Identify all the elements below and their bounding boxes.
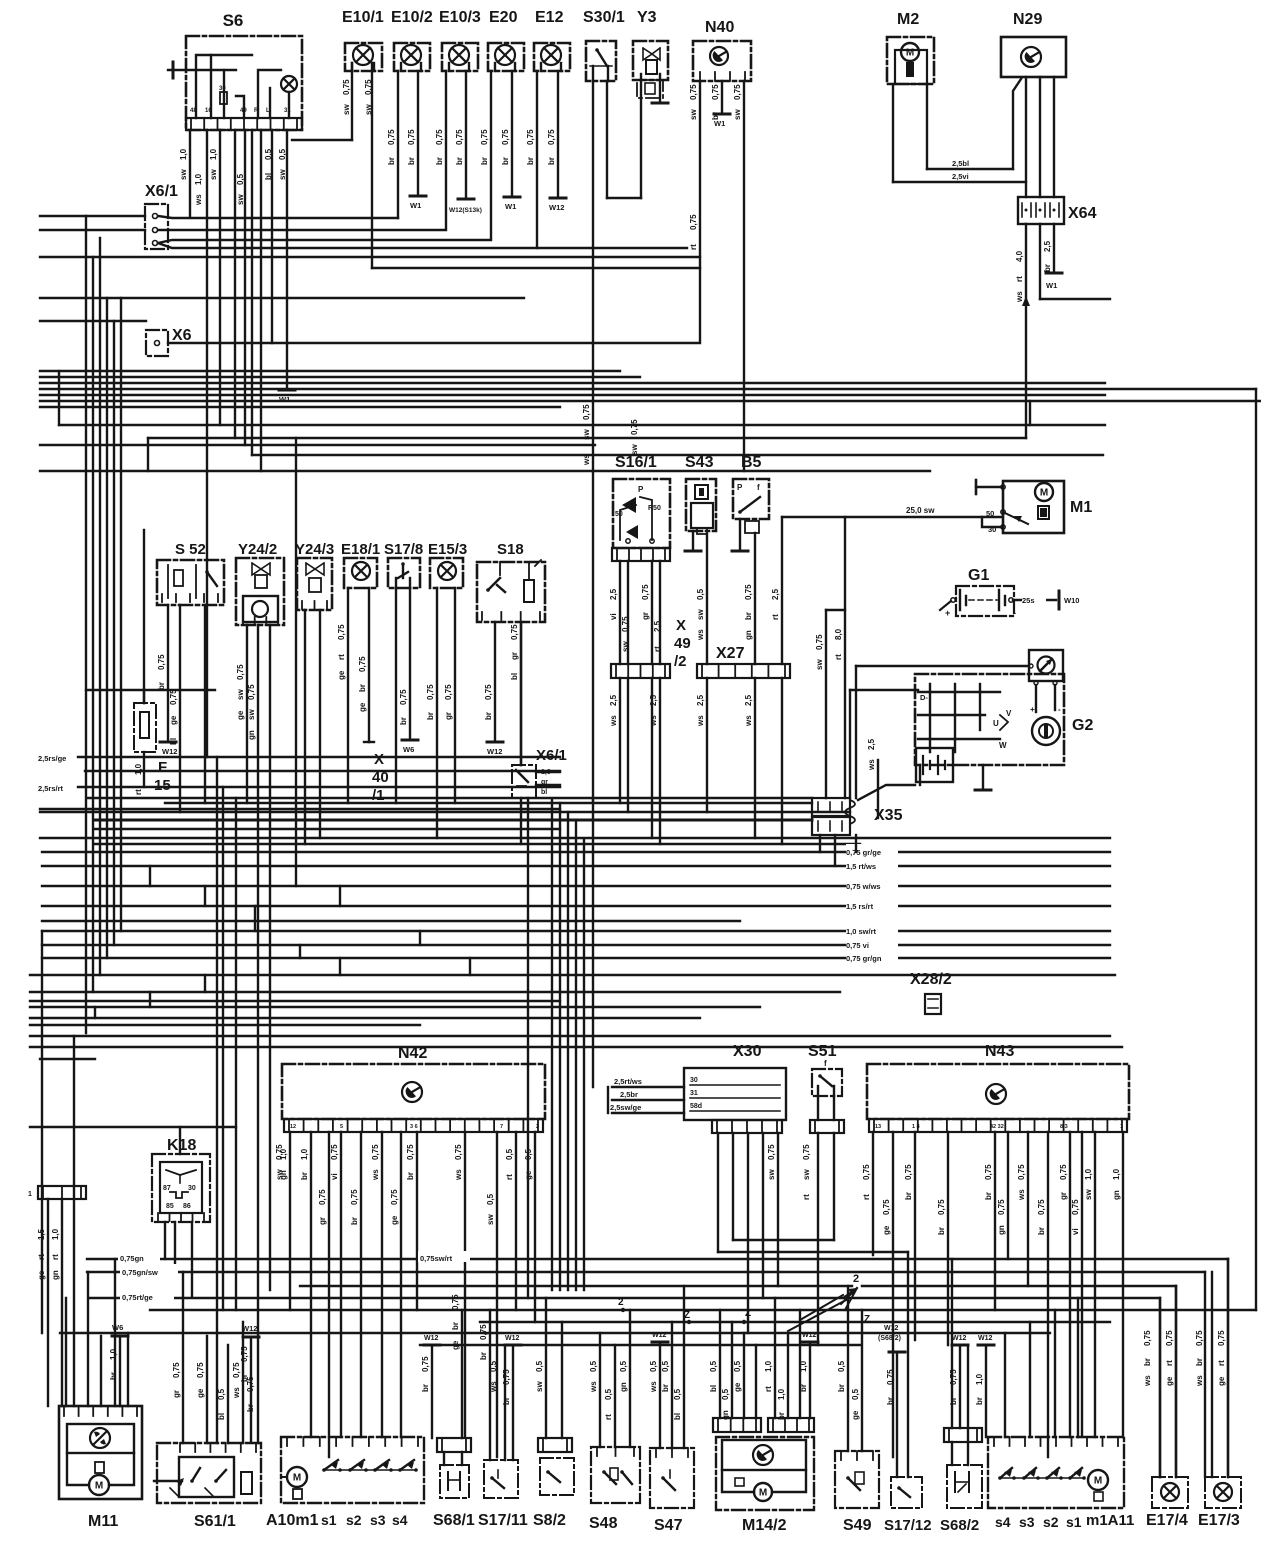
svg-text:2: 2: [618, 1297, 624, 1308]
svg-text:2: 2: [853, 1273, 859, 1285]
svg-text:F: F: [158, 759, 167, 776]
svg-text:N42: N42: [398, 1045, 427, 1062]
svg-text:E17/4: E17/4: [1146, 1512, 1188, 1529]
svg-text:X35: X35: [874, 807, 903, 824]
svg-text:ge: ge: [1217, 1376, 1226, 1386]
svg-text:S17/12: S17/12: [884, 1517, 932, 1534]
svg-text:0,75: 0,75: [744, 584, 753, 600]
svg-text:2: 2: [536, 1124, 539, 1130]
svg-text:S61/1: S61/1: [194, 1513, 236, 1530]
svg-text:0,75: 0,75: [815, 634, 824, 650]
svg-text:1,0: 1,0: [1112, 1168, 1121, 1180]
svg-text:bl: bl: [510, 673, 519, 680]
svg-text:vi: vi: [330, 1173, 339, 1180]
svg-text:0,75: 0,75: [641, 584, 650, 600]
svg-text:1,5 rs/rt: 1,5 rs/rt: [846, 902, 874, 911]
svg-text:s2: s2: [346, 1512, 362, 1528]
svg-text:W1: W1: [279, 395, 290, 404]
svg-text:ws: ws: [454, 1169, 463, 1181]
svg-text:Z: Z: [864, 1314, 870, 1325]
svg-text:br: br: [937, 1227, 946, 1235]
svg-text:0,75: 0,75: [526, 129, 535, 145]
svg-text:0,5: 0,5: [486, 1193, 495, 1205]
svg-text:25,0 sw: 25,0 sw: [906, 506, 935, 515]
svg-text:0,5: 0,5: [505, 1148, 514, 1160]
svg-text:A10m1: A10m1: [266, 1512, 319, 1529]
svg-text:30: 30: [188, 1185, 196, 1192]
svg-text:E20: E20: [489, 9, 518, 26]
svg-text:0,75: 0,75: [1143, 1330, 1152, 1346]
svg-text:2,5: 2,5: [653, 620, 662, 632]
svg-text:Z: Z: [745, 1308, 751, 1319]
svg-text:br: br: [1043, 264, 1052, 272]
svg-text:ws: ws: [194, 194, 203, 206]
svg-text:40: 40: [372, 769, 389, 786]
svg-text:br: br: [777, 1412, 786, 1420]
svg-text:0,75: 0,75: [426, 684, 435, 700]
svg-text:1,0: 1,0: [51, 1228, 60, 1240]
svg-text:br: br: [300, 1172, 309, 1180]
svg-text:s1: s1: [321, 1512, 337, 1528]
svg-text:M: M: [1040, 488, 1048, 499]
svg-text:0,75: 0,75: [937, 1199, 946, 1215]
svg-text:rt: rt: [834, 654, 843, 660]
svg-text:br: br: [426, 712, 435, 720]
svg-text:br: br: [406, 1172, 415, 1180]
svg-text:0,75sw/rt: 0,75sw/rt: [420, 1254, 453, 1263]
svg-text:br: br: [109, 1372, 118, 1380]
svg-text:gr: gr: [172, 1390, 181, 1398]
svg-text:ge: ge: [337, 670, 346, 680]
svg-text:sw: sw: [209, 169, 218, 180]
svg-text:gn: gn: [721, 1410, 730, 1420]
svg-text:0,5: 0,5: [721, 1388, 730, 1400]
svg-text:0,5: 0,5: [837, 1360, 846, 1372]
svg-text:br: br: [526, 157, 535, 165]
svg-text:D-: D-: [920, 693, 928, 702]
svg-text:rt: rt: [862, 1194, 871, 1200]
svg-text:W12: W12: [487, 747, 502, 756]
svg-text:2,5vi: 2,5vi: [952, 172, 969, 181]
svg-text:X64: X64: [1068, 205, 1097, 222]
svg-text:gr: gr: [318, 1217, 327, 1225]
svg-text:W: W: [999, 741, 1007, 750]
svg-text:G2: G2: [1072, 717, 1093, 734]
svg-text:S16/1: S16/1: [615, 454, 657, 471]
svg-text:0,75: 0,75: [949, 1369, 958, 1385]
svg-text:N29: N29: [1013, 11, 1042, 28]
svg-text:rt: rt: [505, 1174, 514, 1180]
svg-text:gn: gn: [247, 730, 256, 740]
svg-text:sw: sw: [815, 659, 824, 670]
svg-text:0,75: 0,75: [330, 1144, 339, 1160]
svg-text:br: br: [984, 1192, 993, 1200]
svg-text:vi: vi: [609, 613, 618, 620]
svg-text:gr: gr: [541, 779, 548, 786]
svg-text:ge: ge: [733, 1382, 742, 1392]
svg-text:rt: rt: [764, 1386, 773, 1392]
svg-text:1: 1: [28, 1191, 32, 1198]
svg-text:0,75: 0,75: [510, 624, 519, 640]
svg-text:0,5: 0,5: [649, 1360, 658, 1372]
svg-text:sw: sw: [247, 709, 256, 720]
svg-text:X27: X27: [716, 645, 745, 662]
svg-text:1,0 sw/rt: 1,0 sw/rt: [846, 927, 877, 936]
svg-text:sw: sw: [236, 689, 245, 700]
svg-text:rt: rt: [653, 646, 662, 652]
svg-text:G1: G1: [968, 567, 989, 584]
svg-text:N43: N43: [985, 1043, 1014, 1060]
svg-text:V: V: [1006, 709, 1012, 718]
svg-text:1,0: 1,0: [134, 763, 143, 775]
svg-text:2,5: 2,5: [649, 694, 658, 706]
svg-text:0,75: 0,75: [1195, 1330, 1204, 1346]
svg-text:1,5: 1,5: [37, 1228, 46, 1240]
svg-text:0,75: 0,75: [904, 1164, 913, 1180]
svg-text:0,75: 0,75: [337, 624, 346, 640]
svg-text:E10/3: E10/3: [439, 9, 481, 26]
svg-text:0,75: 0,75: [1165, 1330, 1174, 1346]
svg-text:ws: ws: [589, 1381, 598, 1393]
svg-text:0,75: 0,75: [246, 1376, 255, 1392]
svg-text:0,75: 0,75: [480, 129, 489, 145]
svg-text:sw: sw: [535, 1381, 544, 1392]
svg-text:0,75: 0,75: [711, 84, 720, 100]
svg-text:0,5: 0,5: [217, 1388, 226, 1400]
svg-text:W12: W12: [884, 1325, 899, 1332]
svg-text:0,75 gr/ge: 0,75 gr/ge: [846, 848, 881, 857]
svg-text:W12: W12: [505, 1335, 520, 1342]
svg-text:0,75: 0,75: [169, 689, 178, 705]
svg-text:br: br: [479, 1352, 488, 1360]
svg-text:P: P: [638, 485, 644, 494]
svg-text:f: f: [757, 483, 760, 492]
svg-text:E15/3: E15/3: [428, 541, 467, 558]
svg-text:Y3: Y3: [637, 9, 657, 26]
svg-text:ws: ws: [1017, 1189, 1026, 1201]
svg-text:bl: bl: [264, 173, 273, 180]
svg-text:0,75: 0,75: [451, 1294, 460, 1310]
svg-text:ws: ws: [232, 1387, 241, 1399]
svg-text:sw: sw: [179, 169, 188, 180]
svg-text:0,75: 0,75: [454, 1144, 463, 1160]
svg-text:0,75: 0,75: [547, 129, 556, 145]
svg-text:sw: sw: [767, 1169, 776, 1180]
svg-text:2,5: 2,5: [609, 694, 618, 706]
svg-text:2,5rs/ge: 2,5rs/ge: [38, 754, 66, 763]
svg-text:0,75: 0,75: [501, 129, 510, 145]
svg-text:0,75: 0,75: [421, 1356, 430, 1372]
svg-text:ge: ge: [1165, 1376, 1174, 1386]
svg-text:2,5rs/rt: 2,5rs/rt: [38, 784, 64, 793]
svg-text:ws: ws: [649, 1381, 658, 1393]
svg-text:0,5: 0,5: [709, 1360, 718, 1372]
svg-text:sw: sw: [802, 1169, 811, 1180]
svg-text:br: br: [1037, 1227, 1046, 1235]
svg-text:Y24/2: Y24/2: [238, 541, 277, 558]
svg-text:2,5: 2,5: [867, 738, 876, 750]
svg-text:ge: ge: [451, 1340, 460, 1350]
svg-text:50: 50: [615, 511, 623, 518]
svg-text:ge: ge: [390, 1215, 399, 1225]
svg-text:S18: S18: [497, 541, 524, 558]
svg-text:S48: S48: [589, 1515, 618, 1532]
svg-text:L: L: [266, 108, 270, 114]
svg-text:br: br: [1143, 1358, 1152, 1366]
svg-text:gr: gr: [444, 712, 453, 720]
svg-text:br: br: [480, 157, 489, 165]
svg-text:ge: ge: [37, 1270, 46, 1280]
svg-text:E17/3: E17/3: [1198, 1512, 1240, 1529]
svg-text:X: X: [676, 617, 686, 634]
svg-text:br: br: [975, 1397, 984, 1405]
svg-text:br: br: [451, 1322, 460, 1330]
svg-text:30: 30: [690, 1077, 698, 1084]
svg-text:S68/2: S68/2: [940, 1517, 979, 1534]
svg-text:8 3: 8 3: [1060, 1124, 1068, 1130]
svg-text:W6: W6: [403, 745, 414, 754]
svg-text:ws: ws: [371, 1169, 380, 1181]
svg-text:0,75: 0,75: [318, 1189, 327, 1205]
svg-text:0,75: 0,75: [444, 684, 453, 700]
svg-text:sw: sw: [364, 104, 373, 115]
svg-text:W12: W12: [802, 1332, 817, 1339]
svg-text:58d: 58d: [690, 1103, 702, 1110]
svg-text:48: 48: [190, 108, 197, 114]
svg-text:vi: vi: [1071, 1228, 1080, 1235]
svg-text:25s: 25s: [1022, 596, 1035, 605]
svg-text:S68/1: S68/1: [433, 1512, 475, 1529]
svg-text:ge: ge: [358, 702, 367, 712]
svg-text:W12(S13k): W12(S13k): [449, 207, 482, 214]
svg-text:0,75: 0,75: [886, 1369, 895, 1385]
svg-text:rt: rt: [134, 789, 143, 795]
svg-text:rt: rt: [1015, 276, 1024, 282]
svg-text:12: 12: [290, 1124, 296, 1130]
svg-text:0,75: 0,75: [240, 1346, 249, 1362]
svg-text:W12: W12: [549, 203, 564, 212]
svg-text:W1: W1: [410, 201, 421, 210]
svg-text:br: br: [358, 684, 367, 692]
svg-text:0,75: 0,75: [390, 1189, 399, 1205]
svg-text:sw: sw: [733, 109, 742, 120]
svg-text:rt: rt: [1165, 1360, 1174, 1366]
svg-text:0,75: 0,75: [407, 129, 416, 145]
svg-text:W12: W12: [424, 1335, 439, 1342]
svg-text:-: -: [1013, 608, 1016, 618]
svg-text:0,75: 0,75: [172, 1362, 181, 1378]
svg-text:sw: sw: [342, 104, 351, 115]
svg-text:M: M: [1094, 1476, 1102, 1487]
svg-text:br: br: [350, 1217, 359, 1225]
svg-text:sw: sw: [689, 109, 698, 120]
svg-text:s2: s2: [1043, 1514, 1059, 1530]
svg-text:W12: W12: [242, 1324, 257, 1333]
svg-text:br: br: [501, 157, 510, 165]
svg-text:sw: sw: [486, 1214, 495, 1225]
svg-text:0,75: 0,75: [358, 656, 367, 672]
svg-text:1,0: 1,0: [109, 1348, 118, 1360]
svg-text:0,5: 0,5: [661, 1360, 670, 1372]
svg-text:2,5: 2,5: [771, 588, 780, 600]
svg-text:0,75: 0,75: [275, 1144, 284, 1160]
svg-text:49: 49: [240, 108, 247, 114]
svg-text:ge: ge: [169, 715, 178, 725]
svg-text:0,75: 0,75: [350, 1189, 359, 1205]
svg-text:5: 5: [340, 1124, 343, 1130]
svg-text:0,75gn/sw: 0,75gn/sw: [122, 1268, 158, 1277]
svg-text:br: br: [949, 1397, 958, 1405]
svg-text:S47: S47: [654, 1517, 683, 1534]
svg-text:ws: ws: [1015, 291, 1024, 303]
svg-text:M: M: [293, 1473, 301, 1484]
svg-text:1,0: 1,0: [764, 1360, 773, 1372]
svg-text:16: 16: [205, 108, 212, 114]
svg-text:0,5: 0,5: [535, 1360, 544, 1372]
svg-text:bl: bl: [709, 1385, 718, 1392]
svg-text:Y24/3: Y24/3: [295, 541, 334, 558]
svg-text:50: 50: [986, 509, 994, 518]
svg-text:0,5: 0,5: [489, 1360, 498, 1372]
svg-text:S49: S49: [843, 1517, 872, 1534]
svg-text:br: br: [407, 157, 416, 165]
svg-text:0,75: 0,75: [1217, 1330, 1226, 1346]
svg-text:br: br: [837, 1384, 846, 1392]
svg-text:0,75: 0,75: [1071, 1199, 1080, 1215]
svg-text:gr: gr: [1059, 1192, 1068, 1200]
svg-text:0,75: 0,75: [236, 664, 245, 680]
svg-text:0,5: 0,5: [278, 148, 287, 160]
svg-text:13: 13: [875, 1124, 881, 1130]
svg-text:rt: rt: [337, 654, 346, 660]
svg-text:1: 1: [1120, 1124, 1123, 1130]
svg-text:rt: rt: [51, 1254, 60, 1260]
svg-text:br: br: [246, 1404, 255, 1412]
svg-text:0,5: 0,5: [733, 1360, 742, 1372]
svg-text:0,75: 0,75: [364, 79, 373, 95]
svg-text:f: f: [824, 1059, 827, 1068]
svg-text:2,5: 2,5: [744, 694, 753, 706]
svg-text:br: br: [547, 157, 556, 165]
svg-text:15: 15: [154, 777, 171, 794]
svg-text:0,5: 0,5: [619, 1360, 628, 1372]
svg-text:0,75 w/ws: 0,75 w/ws: [846, 882, 881, 891]
svg-text:87: 87: [163, 1185, 171, 1192]
svg-text:ws: ws: [696, 629, 705, 641]
svg-text:0,75: 0,75: [406, 1144, 415, 1160]
svg-text:0,75: 0,75: [196, 1362, 205, 1378]
svg-text:br: br: [435, 157, 444, 165]
svg-text:S8/2: S8/2: [533, 1512, 566, 1529]
svg-text:1,0: 1,0: [209, 148, 218, 160]
svg-text:X6: X6: [172, 327, 192, 344]
svg-text:2,5br: 2,5br: [620, 1090, 638, 1099]
svg-text:X6/1: X6/1: [145, 183, 178, 200]
svg-text:sw: sw: [621, 641, 630, 652]
svg-text:1,0: 1,0: [541, 769, 551, 776]
svg-text:0,75: 0,75: [371, 1144, 380, 1160]
svg-text:2,5: 2,5: [609, 588, 618, 600]
svg-text:br: br: [661, 1384, 670, 1392]
svg-text:0,75: 0,75: [621, 616, 630, 632]
svg-text:42 32: 42 32: [990, 1124, 1004, 1130]
svg-text:rt: rt: [802, 1194, 811, 1200]
svg-text:sw: sw: [278, 169, 287, 180]
svg-text:S17/11: S17/11: [478, 1512, 528, 1529]
svg-text:ws: ws: [489, 1381, 498, 1393]
svg-text:/1: /1: [372, 787, 385, 804]
svg-text:0,75: 0,75: [479, 1324, 488, 1340]
svg-text:0,75: 0,75: [232, 1362, 241, 1378]
svg-text:br: br: [399, 717, 408, 725]
svg-text:1,0: 1,0: [194, 173, 203, 185]
svg-text:+: +: [1030, 705, 1035, 714]
svg-text:ge: ge: [236, 710, 245, 720]
svg-text:ws: ws: [867, 759, 876, 771]
svg-text:br: br: [421, 1384, 430, 1392]
svg-text:sw: sw: [275, 1169, 284, 1180]
svg-text:0,75: 0,75: [984, 1164, 993, 1180]
svg-text:M14/2: M14/2: [742, 1517, 787, 1534]
svg-text:0,75 gr/gn: 0,75 gr/gn: [846, 954, 882, 963]
svg-text:s4: s4: [392, 1512, 408, 1528]
svg-text:(S68/2): (S68/2): [878, 1335, 901, 1342]
svg-text:W12: W12: [952, 1335, 967, 1342]
svg-text:W6: W6: [112, 1323, 123, 1332]
svg-text:S6: S6: [223, 11, 244, 30]
svg-text:0,75: 0,75: [387, 129, 396, 145]
svg-text:br: br: [886, 1397, 895, 1405]
svg-text:1 4: 1 4: [912, 1124, 921, 1130]
svg-text:M1: M1: [1070, 499, 1092, 516]
svg-text:gn: gn: [744, 630, 753, 640]
svg-text:M: M: [95, 1481, 103, 1492]
svg-text:gn: gn: [997, 1225, 1006, 1235]
svg-text:0,5: 0,5: [264, 148, 273, 160]
svg-text:0,75: 0,75: [1037, 1199, 1046, 1215]
svg-text:S51: S51: [808, 1043, 837, 1060]
svg-text:0,5: 0,5: [589, 1360, 598, 1372]
svg-text:0,75gn: 0,75gn: [120, 1254, 144, 1263]
svg-text:ws: ws: [649, 715, 658, 727]
svg-text:gr: gr: [641, 612, 650, 620]
svg-text:0,75: 0,75: [435, 129, 444, 145]
svg-text:ws: ws: [744, 715, 753, 727]
svg-text:0,75: 0,75: [342, 79, 351, 95]
svg-text:8,0: 8,0: [834, 628, 843, 640]
svg-text:rt: rt: [604, 1414, 613, 1420]
svg-text:gn: gn: [1112, 1190, 1121, 1200]
svg-text:0,75: 0,75: [689, 214, 698, 230]
svg-text:X: X: [374, 751, 384, 768]
svg-text:gr: gr: [510, 652, 519, 660]
svg-text:K18: K18: [167, 1137, 196, 1154]
svg-text:P: P: [737, 483, 743, 492]
svg-text:W12: W12: [652, 1332, 667, 1339]
svg-text:0,5: 0,5: [696, 588, 705, 600]
svg-text:49: 49: [674, 635, 691, 652]
svg-text:E10/1: E10/1: [342, 9, 384, 26]
svg-text:W12: W12: [978, 1335, 993, 1342]
svg-text:br: br: [484, 712, 493, 720]
svg-text:1,0: 1,0: [300, 1148, 309, 1160]
svg-text:gn: gn: [51, 1270, 60, 1280]
svg-text:1,0: 1,0: [975, 1373, 984, 1385]
svg-text:/2: /2: [674, 653, 687, 670]
svg-text:0,5: 0,5: [604, 1388, 613, 1400]
svg-text:W1: W1: [1046, 281, 1057, 290]
svg-text:br: br: [904, 1192, 913, 1200]
